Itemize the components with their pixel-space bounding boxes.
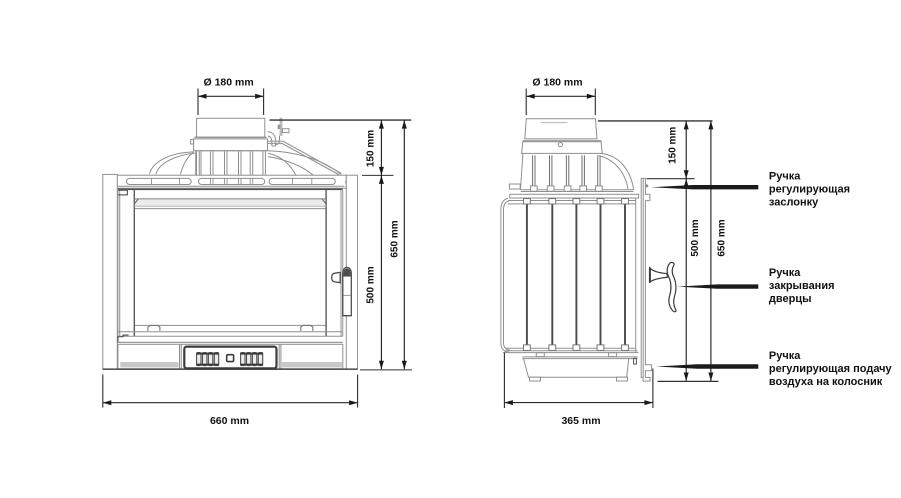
svg-text:дверцы: дверцы	[769, 293, 812, 305]
svg-text:воздуха на колосник: воздуха на колосник	[769, 376, 883, 388]
svg-text:150 mm: 150 mm	[667, 127, 678, 164]
svg-text:заслонку: заслонку	[769, 197, 819, 209]
svg-text:Ручка: Ручка	[769, 267, 801, 279]
svg-text:650 mm: 650 mm	[389, 220, 400, 257]
svg-text:регулирующая подачу: регулирующая подачу	[769, 363, 893, 375]
svg-text:Ø 180 mm: Ø 180 mm	[532, 76, 582, 88]
svg-text:150 mm: 150 mm	[366, 130, 377, 167]
svg-text:Ø 180 mm: Ø 180 mm	[203, 76, 253, 88]
svg-text:365 mm: 365 mm	[561, 415, 600, 427]
svg-text:закрывания: закрывания	[769, 280, 835, 292]
svg-text:500 mm: 500 mm	[366, 266, 377, 303]
svg-text:регулирующая: регулирующая	[769, 184, 850, 196]
svg-text:Ручка: Ручка	[769, 350, 801, 362]
svg-text:650 mm: 650 mm	[716, 219, 727, 256]
svg-text:660 mm: 660 mm	[210, 415, 249, 427]
svg-text:500 mm: 500 mm	[690, 219, 701, 256]
svg-text:Ручка: Ручка	[769, 171, 801, 183]
